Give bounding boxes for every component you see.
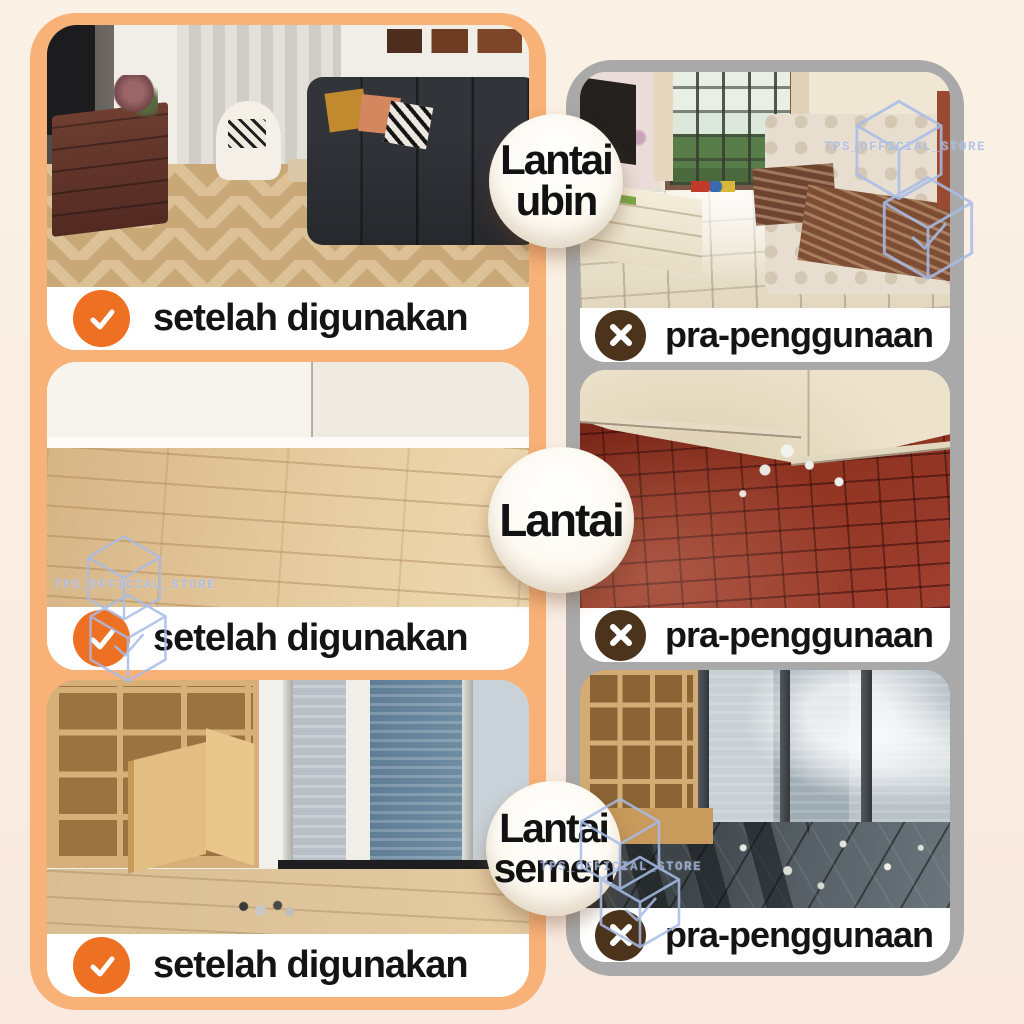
before-label-bar: pra-penggunaan — [580, 308, 950, 362]
wood-vinyl-floor — [47, 448, 529, 607]
badge-line: ubin — [516, 181, 597, 222]
wall — [47, 362, 529, 437]
sideboard — [52, 102, 168, 237]
window-frame — [698, 670, 708, 822]
pillow — [383, 100, 433, 149]
window-tower-view — [370, 680, 462, 868]
cross-icon — [595, 310, 646, 361]
window-frame — [861, 670, 871, 822]
window-building-view — [288, 680, 346, 868]
curtain — [654, 72, 673, 181]
after-label: setelah digunakan — [153, 297, 468, 340]
after-photo-cabinet-room — [47, 680, 529, 934]
picture-frames — [387, 29, 522, 53]
check-icon — [73, 610, 130, 667]
badge-lantai-semen: Lantai semen — [486, 781, 621, 916]
check-icon — [73, 937, 130, 994]
check-icon — [73, 290, 130, 347]
badge-line: Lantai — [500, 140, 612, 181]
before-card-cement-room: pra-penggunaan — [580, 670, 950, 962]
wall-column — [346, 680, 370, 868]
cabinet-door — [134, 742, 206, 872]
cross-icon — [595, 610, 646, 661]
before-label: pra-penggunaan — [665, 914, 933, 956]
badge-line: Lantai — [499, 809, 608, 849]
before-label-bar: pra-penggunaan — [580, 608, 950, 662]
before-card-tile-living-room: pra-penggunaan — [580, 72, 950, 362]
before-card-red-tile-room: pra-penggunaan — [580, 370, 950, 662]
after-panel: setelah digunakan setelah digunakan — [30, 13, 546, 1010]
cross-icon — [595, 910, 646, 961]
after-card-living-room: setelah digunakan — [47, 25, 529, 350]
window-frame — [462, 680, 474, 868]
cabinet-door — [206, 728, 254, 866]
window-frame — [283, 680, 293, 868]
after-label-bar: setelah digunakan — [47, 934, 529, 997]
floor-toys — [691, 181, 735, 193]
pillow — [228, 119, 267, 148]
window-frame — [780, 670, 790, 822]
before-label: pra-penggunaan — [665, 614, 933, 656]
promo-image: { "page": { "background": "#FAEEE2" }, "… — [0, 0, 1024, 1024]
before-photo-cement-room — [580, 670, 950, 908]
after-photo-empty-room — [47, 362, 529, 607]
after-label: setelah digunakan — [153, 617, 468, 660]
before-photo-tile-living-room — [580, 72, 950, 308]
after-card-empty-room: setelah digunakan — [47, 362, 529, 670]
red-curtain — [937, 91, 950, 209]
paint-splatters — [721, 825, 943, 901]
baseboard — [47, 437, 529, 448]
after-label-bar: setelah digunakan — [47, 607, 529, 670]
badge-lantai: Lantai — [488, 447, 634, 593]
before-label-bar: pra-penggunaan — [580, 908, 950, 962]
flower-vase — [114, 75, 157, 117]
before-photo-red-tile-room — [580, 370, 950, 608]
before-label: pra-penggunaan — [665, 314, 933, 356]
after-photo-living-room — [47, 25, 529, 287]
smudged-window — [698, 670, 950, 822]
after-label-bar: setelah digunakan — [47, 287, 529, 350]
after-card-cabinet-room: setelah digunakan — [47, 680, 529, 997]
badge-line: Lantai — [499, 498, 622, 543]
badge-lantai-ubin: Lantai ubin — [489, 114, 623, 248]
floor-debris — [580, 370, 950, 608]
floor-items — [230, 898, 297, 918]
after-label: setelah digunakan — [153, 944, 468, 987]
badge-line: semen — [494, 849, 614, 889]
